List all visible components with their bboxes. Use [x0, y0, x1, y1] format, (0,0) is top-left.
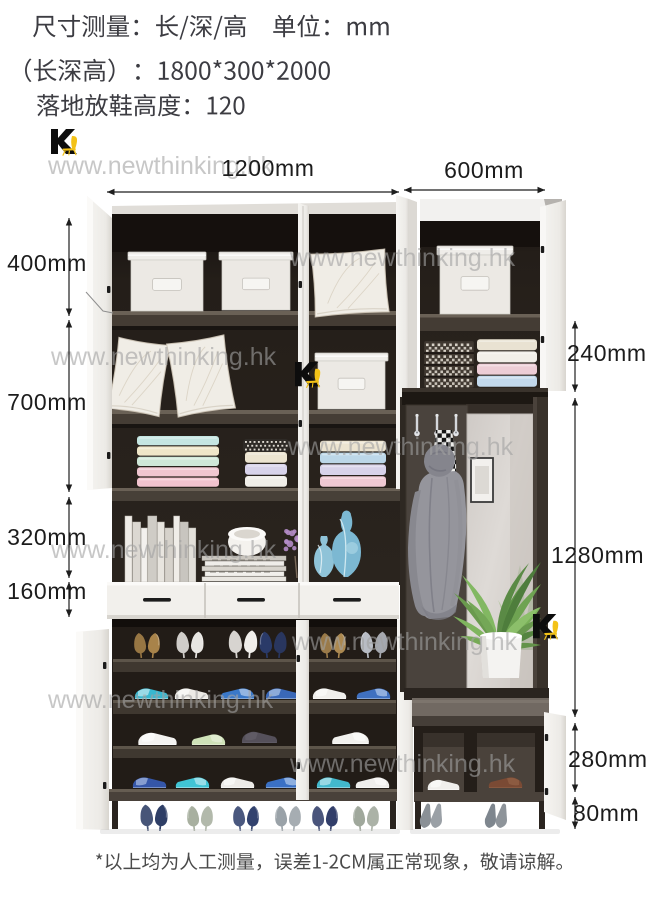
svg-text:320mm: 320mm	[7, 524, 87, 550]
svg-text:www.newthinking.hk: www.newthinking.hk	[47, 686, 274, 714]
svg-text:www.newthinking.hk: www.newthinking.hk	[291, 628, 518, 656]
svg-text:240mm: 240mm	[567, 340, 647, 366]
svg-text:700mm: 700mm	[7, 389, 87, 415]
svg-text:www.newthinking.hk: www.newthinking.hk	[50, 343, 277, 371]
svg-text:160mm: 160mm	[7, 578, 87, 604]
svg-text:80mm: 80mm	[573, 800, 639, 826]
svg-text:600mm: 600mm	[444, 157, 524, 183]
svg-text:www.newthinking.hk: www.newthinking.hk	[289, 244, 516, 272]
svg-text:280mm: 280mm	[568, 746, 648, 772]
svg-text:1200mm: 1200mm	[221, 155, 314, 181]
svg-text:www.newthinking.hk: www.newthinking.hk	[289, 750, 516, 778]
svg-text:www.newthinking.hk: www.newthinking.hk	[287, 433, 514, 461]
svg-text:1280mm: 1280mm	[551, 542, 644, 568]
svg-text:400mm: 400mm	[7, 250, 87, 276]
